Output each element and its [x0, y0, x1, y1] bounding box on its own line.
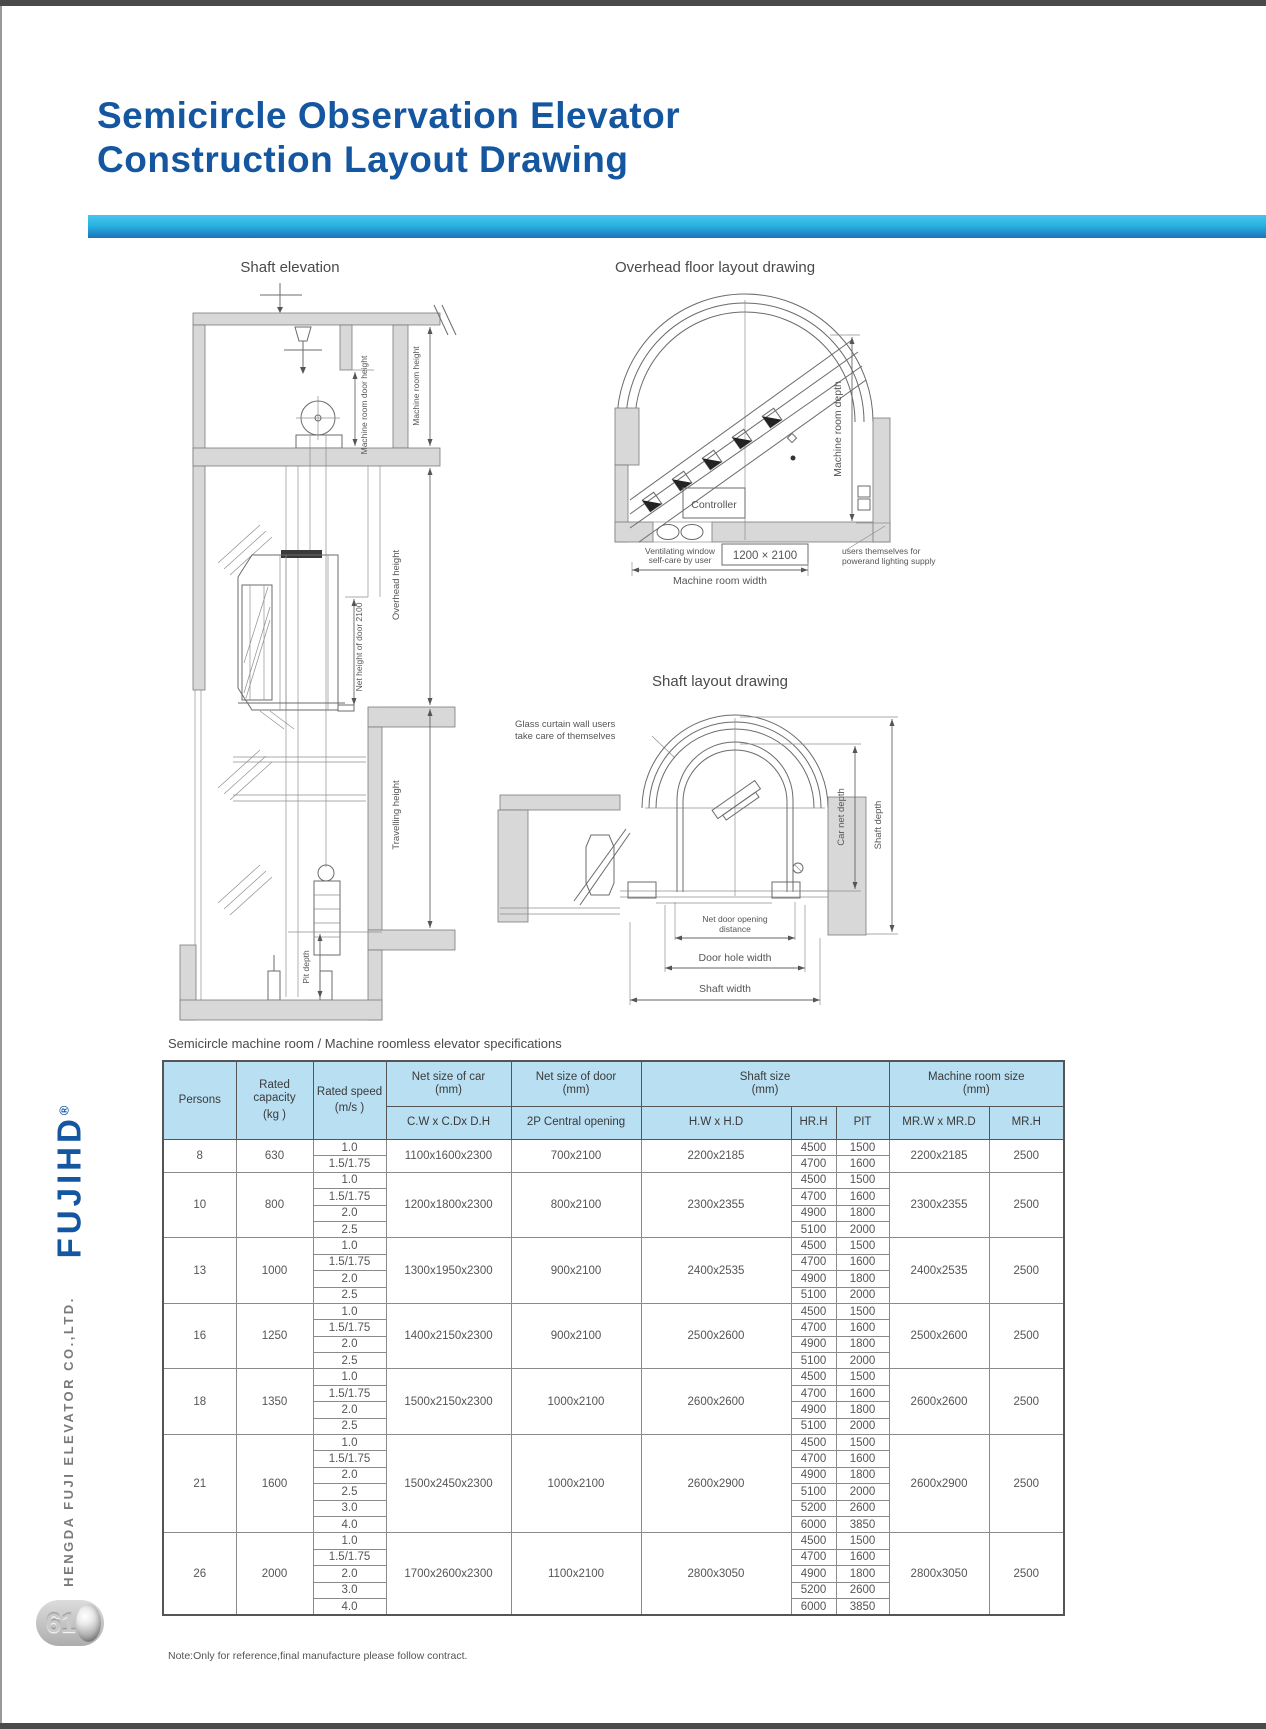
shaft-layout-title: Shaft layout drawing — [652, 673, 788, 690]
label-power-note-2: powerand lighting supply — [842, 556, 936, 566]
scan-edge-left — [0, 6, 2, 1723]
cell-machine-room-size: 2200x2185 — [889, 1140, 989, 1173]
cell-rated-speed: 1.0 — [313, 1238, 386, 1254]
cell-persons: 13 — [163, 1238, 236, 1304]
cell-hrh: 4900 — [791, 1271, 836, 1287]
cell-pit: 2600 — [836, 1500, 889, 1516]
cell-door-size: 1100x2100 — [511, 1533, 641, 1615]
cell-hrh: 4500 — [791, 1172, 836, 1188]
cell-rated-capacity: 1000 — [236, 1238, 313, 1304]
cell-pit: 1500 — [836, 1140, 889, 1156]
cell-rated-capacity: 2000 — [236, 1533, 313, 1615]
col-header-rated-speed: Rated speed(m/s ) — [313, 1061, 386, 1140]
label-vent-size: 1200 × 2100 — [733, 550, 797, 562]
cell-machine-room-size: 2800x3050 — [889, 1533, 989, 1615]
cell-hrh: 5100 — [791, 1221, 836, 1237]
cell-mrh: 2500 — [989, 1238, 1064, 1304]
page-number: 61 — [46, 1608, 76, 1639]
label-machine-room-width: Machine room width — [673, 575, 767, 587]
label-shaft-width: Shaft width — [699, 983, 751, 995]
cell-rated-speed: 2.0 — [313, 1336, 386, 1352]
cell-shaft-size: 2800x3050 — [641, 1533, 791, 1615]
cell-hrh: 5100 — [791, 1287, 836, 1303]
col-subheader-door: 2P Central opening — [511, 1107, 641, 1140]
cell-rated-speed: 1.5/1.75 — [313, 1385, 386, 1401]
cell-pit: 2000 — [836, 1353, 889, 1369]
cell-pit: 2600 — [836, 1582, 889, 1598]
cell-rated-speed: 4.0 — [313, 1598, 386, 1615]
cell-hrh: 4900 — [791, 1566, 836, 1582]
cell-rated-capacity: 1350 — [236, 1369, 313, 1435]
cell-rated-speed: 2.5 — [313, 1418, 386, 1434]
cell-persons: 18 — [163, 1369, 236, 1435]
cell-pit: 1600 — [836, 1189, 889, 1205]
cell-pit: 1800 — [836, 1566, 889, 1582]
cell-door-size: 900x2100 — [511, 1238, 641, 1304]
cell-rated-speed: 1.0 — [313, 1303, 386, 1319]
cell-rated-capacity: 1250 — [236, 1303, 313, 1369]
label-machine-room-depth: Machine room depth — [832, 381, 844, 477]
brand-logo: FUJIHD® — [50, 1106, 88, 1259]
cell-persons: 16 — [163, 1303, 236, 1369]
cell-pit: 1800 — [836, 1271, 889, 1287]
cell-hrh: 5100 — [791, 1484, 836, 1500]
spec-row: 86301.01100x1600x2300700x21002200x218545… — [163, 1140, 1064, 1156]
cell-door-size: 800x2100 — [511, 1172, 641, 1238]
cell-hrh: 4500 — [791, 1533, 836, 1549]
label-travelling-height: Travelling height — [391, 780, 402, 850]
cell-rated-speed: 2.0 — [313, 1205, 386, 1221]
cell-hrh: 5200 — [791, 1582, 836, 1598]
specifications-table: Persons Rated capacity(kg ) Rated speed(… — [162, 1060, 1065, 1616]
cell-rated-speed: 2.0 — [313, 1467, 386, 1483]
cell-rated-speed: 1.5/1.75 — [313, 1189, 386, 1205]
cell-pit: 1800 — [836, 1205, 889, 1221]
cell-hrh: 4500 — [791, 1435, 836, 1451]
cell-pit: 2000 — [836, 1484, 889, 1500]
cell-pit: 1800 — [836, 1467, 889, 1483]
registered-trademark: ® — [56, 1106, 71, 1116]
cell-rated-speed: 2.5 — [313, 1221, 386, 1237]
cell-pit: 2000 — [836, 1287, 889, 1303]
spec-row: 1813501.01500x2150x23001000x21002600x260… — [163, 1369, 1064, 1385]
page-number-badge: 61 — [36, 1600, 104, 1646]
spec-row: 1310001.01300x1950x2300900x21002400x2535… — [163, 1238, 1064, 1254]
col-subheader-hwhd: H.W x H.D — [641, 1107, 791, 1140]
label-glass-note-1: Glass curtain wall users — [515, 719, 616, 730]
cell-hrh: 4900 — [791, 1467, 836, 1483]
cell-rated-capacity: 630 — [236, 1140, 313, 1173]
overhead-layout-drawing: Overhead floor layout drawing Controller — [540, 250, 980, 590]
cell-shaft-size: 2600x2900 — [641, 1435, 791, 1533]
cell-hrh: 4700 — [791, 1254, 836, 1270]
cell-car-size: 1300x1950x2300 — [386, 1238, 511, 1304]
cell-mrh: 2500 — [989, 1369, 1064, 1435]
cell-pit: 3850 — [836, 1598, 889, 1615]
spec-row: 1612501.01400x2150x2300900x21002500x2600… — [163, 1303, 1064, 1319]
cell-rated-speed: 3.0 — [313, 1500, 386, 1516]
cell-pit: 1500 — [836, 1369, 889, 1385]
cell-car-size: 1100x1600x2300 — [386, 1140, 511, 1173]
col-subheader-hrh: HR.H — [791, 1107, 836, 1140]
cell-door-size: 1000x2100 — [511, 1435, 641, 1533]
cell-mrh: 2500 — [989, 1533, 1064, 1615]
label-net-door-height: Net height of door 2100 — [354, 602, 364, 691]
company-name: HENGDA FUJI ELEVATOR CO.,LTD. — [61, 1296, 76, 1587]
label-machine-room-door-height: Machine room door height — [359, 355, 369, 454]
cell-rated-speed: 2.0 — [313, 1271, 386, 1287]
col-subheader-mrh: MR.H — [989, 1107, 1064, 1140]
cell-machine-room-size: 2600x2900 — [889, 1435, 989, 1533]
overhead-layout-title: Overhead floor layout drawing — [615, 259, 815, 276]
label-net-door-opening-2: distance — [719, 924, 751, 934]
cell-hrh: 4500 — [791, 1140, 836, 1156]
cell-persons: 26 — [163, 1533, 236, 1615]
col-header-rated-capacity: Rated capacity(kg ) — [236, 1061, 313, 1140]
cell-rated-speed: 1.0 — [313, 1140, 386, 1156]
label-net-door-opening-1: Net door opening — [702, 914, 767, 924]
cell-door-size: 1000x2100 — [511, 1369, 641, 1435]
accent-bar — [88, 215, 1266, 238]
cell-machine-room-size: 2400x2535 — [889, 1238, 989, 1304]
cell-hrh: 5100 — [791, 1418, 836, 1434]
cell-rated-speed: 1.0 — [313, 1369, 386, 1385]
cell-pit: 2000 — [836, 1418, 889, 1434]
cell-hrh: 5200 — [791, 1500, 836, 1516]
shaft-layout-drawing: Shaft layout drawing Glass curtain wall … — [460, 660, 920, 1005]
spec-row: 108001.01200x1800x2300800x21002300x23554… — [163, 1172, 1064, 1188]
cell-car-size: 1200x1800x2300 — [386, 1172, 511, 1238]
cell-rated-speed: 2.5 — [313, 1287, 386, 1303]
cell-shaft-size: 2300x2355 — [641, 1172, 791, 1238]
cell-pit: 1500 — [836, 1238, 889, 1254]
cell-door-size: 700x2100 — [511, 1140, 641, 1173]
cell-rated-speed: 2.0 — [313, 1402, 386, 1418]
cell-rated-speed: 1.5/1.75 — [313, 1451, 386, 1467]
cell-hrh: 6000 — [791, 1516, 836, 1532]
cell-hrh: 4500 — [791, 1303, 836, 1319]
cell-pit: 1600 — [836, 1156, 889, 1172]
cell-pit: 1800 — [836, 1402, 889, 1418]
label-pit-depth: Pit depth — [301, 950, 311, 984]
cell-pit: 1500 — [836, 1533, 889, 1549]
cell-hrh: 4900 — [791, 1402, 836, 1418]
cell-shaft-size: 2600x2600 — [641, 1369, 791, 1435]
label-door-hole-width: Door hole width — [699, 952, 772, 964]
cell-rated-capacity: 1600 — [236, 1435, 313, 1533]
spec-row: 2116001.01500x2450x23001000x21002600x290… — [163, 1435, 1064, 1451]
cell-pit: 1500 — [836, 1172, 889, 1188]
cell-hrh: 4700 — [791, 1549, 836, 1565]
cell-hrh: 4700 — [791, 1451, 836, 1467]
label-glass-note-2: take care of themselves — [515, 731, 616, 742]
cell-hrh: 4500 — [791, 1238, 836, 1254]
cell-rated-speed: 1.5/1.75 — [313, 1320, 386, 1336]
cell-pit: 1500 — [836, 1303, 889, 1319]
document-page: Semicircle Observation Elevator Construc… — [0, 0, 1266, 1729]
cell-rated-speed: 1.5/1.75 — [313, 1254, 386, 1270]
cell-pit: 1600 — [836, 1254, 889, 1270]
cell-hrh: 4900 — [791, 1205, 836, 1221]
cell-persons: 8 — [163, 1140, 236, 1173]
cell-pit: 1600 — [836, 1451, 889, 1467]
label-overhead-height: Overhead height — [391, 550, 402, 621]
cell-pit: 1600 — [836, 1320, 889, 1336]
cell-hrh: 4500 — [791, 1369, 836, 1385]
brand-logo-wrap: FUJIHD® — [40, 1082, 98, 1282]
cell-hrh: 4700 — [791, 1156, 836, 1172]
scan-edge-bottom — [0, 1723, 1266, 1729]
label-ventilating-window-2: self-care by user — [649, 555, 712, 565]
cell-hrh: 4900 — [791, 1336, 836, 1352]
cell-rated-speed: 1.5/1.75 — [313, 1549, 386, 1565]
reference-note: Note:Only for reference,final manufactur… — [168, 1650, 467, 1662]
cell-car-size: 1500x2450x2300 — [386, 1435, 511, 1533]
label-car-net-depth: Car net depth — [836, 788, 847, 846]
cell-shaft-size: 2200x2185 — [641, 1140, 791, 1173]
cell-rated-speed: 2.5 — [313, 1353, 386, 1369]
cell-shaft-size: 2400x2535 — [641, 1238, 791, 1304]
cell-hrh: 4700 — [791, 1385, 836, 1401]
col-header-persons: Persons — [163, 1061, 236, 1140]
cell-rated-speed: 1.5/1.75 — [313, 1156, 386, 1172]
label-shaft-depth: Shaft depth — [873, 801, 884, 850]
cell-car-size: 1500x2150x2300 — [386, 1369, 511, 1435]
shaft-elevation-title: Shaft elevation — [240, 259, 339, 276]
cell-rated-capacity: 800 — [236, 1172, 313, 1238]
cell-persons: 21 — [163, 1435, 236, 1533]
cell-mrh: 2500 — [989, 1172, 1064, 1238]
company-name-wrap: HENGDA FUJI ELEVATOR CO.,LTD. — [53, 1285, 83, 1597]
cell-car-size: 1400x2150x2300 — [386, 1303, 511, 1369]
col-header-net-car: Net size of car(mm) — [386, 1061, 511, 1107]
spec-row: 2620001.01700x2600x23001100x21002800x305… — [163, 1533, 1064, 1549]
col-header-net-door: Net size of door(mm) — [511, 1061, 641, 1107]
col-header-machine-room: Machine room size(mm) — [889, 1061, 1064, 1107]
cell-rated-speed: 1.0 — [313, 1172, 386, 1188]
cell-hrh: 4700 — [791, 1189, 836, 1205]
page-title-line2: Construction Layout Drawing — [97, 138, 680, 182]
cell-pit: 3850 — [836, 1516, 889, 1532]
col-subheader-mrw: MR.W x MR.D — [889, 1107, 989, 1140]
cell-machine-room-size: 2300x2355 — [889, 1172, 989, 1238]
cell-pit: 1600 — [836, 1549, 889, 1565]
cell-mrh: 2500 — [989, 1435, 1064, 1533]
cell-pit: 1600 — [836, 1385, 889, 1401]
col-subheader-pit: PIT — [836, 1107, 889, 1140]
scan-edge-top — [0, 0, 1266, 6]
label-power-note-1: users themselves for — [842, 546, 921, 556]
cell-rated-speed: 2.0 — [313, 1566, 386, 1582]
page-title-line1: Semicircle Observation Elevator — [97, 94, 680, 138]
sphere-icon — [76, 1604, 101, 1642]
cell-hrh: 6000 — [791, 1598, 836, 1615]
page-title: Semicircle Observation Elevator Construc… — [97, 94, 680, 181]
cell-machine-room-size: 2600x2600 — [889, 1369, 989, 1435]
col-subheader-car: C.W x C.Dx D.H — [386, 1107, 511, 1140]
cell-rated-speed: 2.5 — [313, 1484, 386, 1500]
shaft-elevation-drawing: Shaft elevation Machine room door height… — [168, 255, 468, 1030]
cell-rated-speed: 3.0 — [313, 1582, 386, 1598]
cell-hrh: 4700 — [791, 1320, 836, 1336]
header-row-groups: Persons Rated capacity(kg ) Rated speed(… — [163, 1061, 1064, 1107]
cell-machine-room-size: 2500x2600 — [889, 1303, 989, 1369]
col-header-shaft-size: Shaft size(mm) — [641, 1061, 889, 1107]
cell-rated-speed: 1.0 — [313, 1533, 386, 1549]
cell-pit: 1500 — [836, 1435, 889, 1451]
cell-rated-speed: 1.0 — [313, 1435, 386, 1451]
cell-rated-speed: 4.0 — [313, 1516, 386, 1532]
label-machine-room-height: Machine room height — [411, 346, 421, 426]
label-controller: Controller — [691, 499, 737, 511]
cell-hrh: 5100 — [791, 1353, 836, 1369]
cell-mrh: 2500 — [989, 1140, 1064, 1173]
cell-mrh: 2500 — [989, 1303, 1064, 1369]
table-caption: Semicircle machine room / Machine roomle… — [168, 1036, 562, 1051]
cell-shaft-size: 2500x2600 — [641, 1303, 791, 1369]
cell-door-size: 900x2100 — [511, 1303, 641, 1369]
cell-persons: 10 — [163, 1172, 236, 1238]
cell-pit: 2000 — [836, 1221, 889, 1237]
cell-car-size: 1700x2600x2300 — [386, 1533, 511, 1615]
cell-pit: 1800 — [836, 1336, 889, 1352]
